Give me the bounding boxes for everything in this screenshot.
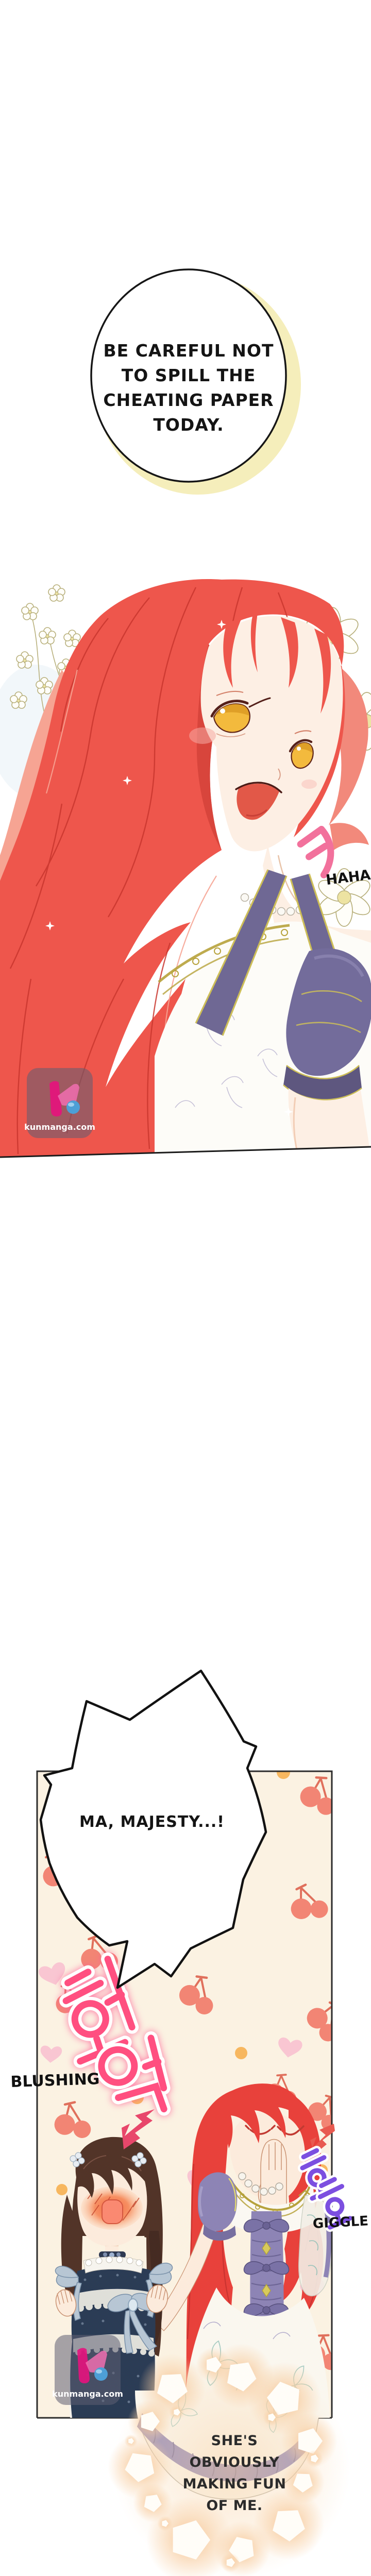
panel-2-section: BLUSHING bbox=[0, 1623, 371, 2576]
thought-line-2: OBVIOUSLY bbox=[190, 2454, 280, 2470]
blush-left bbox=[189, 727, 216, 744]
speech-bubble-top: BE CAREFUL NOT TO SPILL THE CHEATING PAP… bbox=[0, 222, 371, 520]
thought-line-4: OF ME. bbox=[206, 2498, 262, 2514]
watermark-kunmanga-2 bbox=[52, 2335, 123, 2405]
right-eye bbox=[290, 740, 313, 768]
bubble-line-2: TO SPILL THE bbox=[122, 365, 256, 385]
panel-1-artwork: kunmanga.com bbox=[0, 536, 371, 1185]
thought-line-1: SHE'S bbox=[211, 2433, 258, 2449]
sfx-blushing: BLUSHING bbox=[10, 2070, 100, 2091]
bubble-line-1: BE CAREFUL NOT bbox=[104, 341, 274, 361]
webtoon-page: BE CAREFUL NOT TO SPILL THE CHEATING PAP… bbox=[0, 0, 371, 2576]
bubble-majesty-text: MA, MAJESTY...! bbox=[79, 1813, 225, 1831]
thought-line-3: MAKING FUN bbox=[183, 2476, 286, 2492]
sfx-giggle: GIGGLE bbox=[312, 2213, 368, 2232]
blush-right bbox=[301, 779, 317, 789]
watermark-kunmanga-1 bbox=[24, 1068, 95, 1138]
maid-mouth bbox=[102, 2200, 123, 2224]
maid-bow-jewel bbox=[128, 2299, 138, 2311]
bubble-line-3: CHEATING PAPER bbox=[103, 390, 274, 410]
bubble-line-4: TODAY. bbox=[153, 415, 224, 435]
